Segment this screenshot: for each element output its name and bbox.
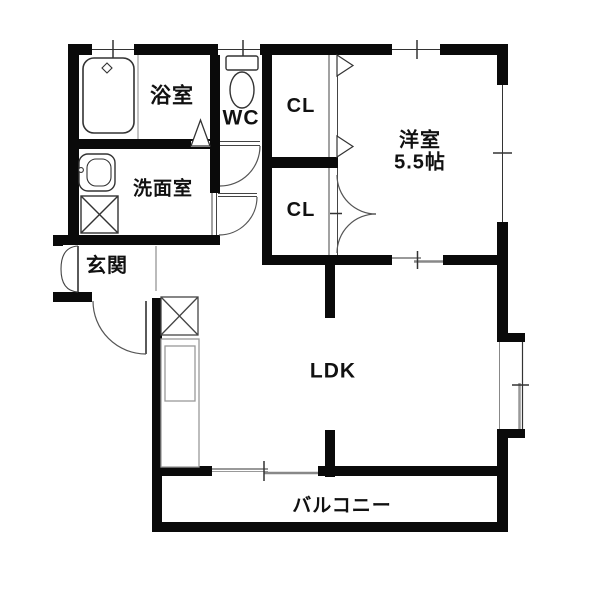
window-bathroom-top [92,40,134,59]
window-westernroom-right [493,85,512,222]
balcony-label: バルコニー [292,497,392,518]
wall-left-upper [68,44,79,238]
wall-right-mid [497,222,508,333]
washbasin-icon [79,154,115,191]
wc-door-swing [220,142,260,187]
bay-window-ldk-right [500,342,530,429]
wall-bay-top [497,333,525,342]
window-westernroom-top [392,40,440,59]
wall-right-upper [497,44,508,85]
washroom-label: 洗面室 [133,180,193,201]
wc-label: WC [223,108,260,131]
western-room-label: 洋室 5.5帖 [394,130,446,173]
refrigerator-space-icon [161,297,198,335]
western-room-name: 洋室 [394,130,446,152]
wall-stub-lower [325,430,335,477]
washing-machine-pan-icon [81,196,118,233]
wall-washroom-bottom [53,235,220,245]
toilet-icon [226,56,258,108]
closet-upper-label: CL [287,96,316,118]
ldk-door-swing [93,301,146,354]
closet-lower-label: CL [287,200,316,222]
bathroom-label: 浴室 [150,86,194,109]
wall-bay-bottom [497,429,525,438]
bathroom-folding-door [191,120,210,147]
wall-wc-closet-divider [262,44,272,265]
entrance-front-door [53,246,78,292]
wall-balcony-bottom [152,522,508,532]
sliding-door-balcony [212,461,318,481]
closet-lower-double-doors [329,168,376,255]
wall-westernroom-bottom [272,255,508,265]
wall-stub-upper [325,265,335,318]
sliding-door-westernroom [392,251,443,269]
entrance-label: 玄関 [86,256,128,278]
wall-entrance-bottom [53,292,92,302]
wall-bath-wc-divider [210,44,220,193]
closet-upper-folding-doors [329,55,353,157]
kitchen-sink-icon [165,346,195,401]
bathtub-icon [83,58,134,133]
washroom-door-swing [212,193,257,235]
floor-plan: 浴室 WC 洗面室 玄関 CL CL 洋室 5.5帖 LDK バルコニー [0,0,600,600]
kitchen-counter-icon [161,339,199,467]
wall-closet-divider [272,157,338,168]
ldk-label: LDK [310,361,356,384]
wall-right-lower [497,438,508,532]
western-room-size: 5.5帖 [394,152,446,174]
